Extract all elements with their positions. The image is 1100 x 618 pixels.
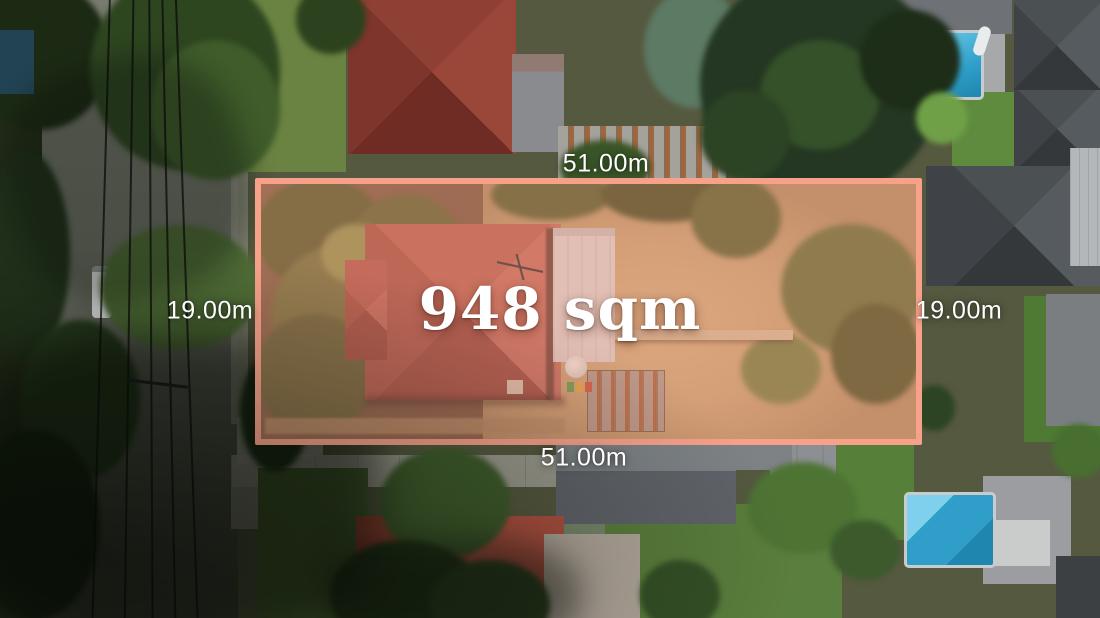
neighbor-annex-top xyxy=(512,54,564,152)
tree-canopy xyxy=(830,520,900,580)
dimension-label-left: 19.00m xyxy=(167,297,253,326)
tin-roof-right-edge xyxy=(1070,148,1100,266)
roof-bottom-right-corner xyxy=(1056,556,1100,618)
tree-canopy xyxy=(916,92,968,144)
tree-shadow xyxy=(320,540,580,618)
neighbor-roof-top-right-a xyxy=(1014,0,1100,92)
tree-canopy xyxy=(1052,424,1100,478)
area-label: 948 sqm xyxy=(419,275,702,343)
dimension-label-bottom: 51.00m xyxy=(541,444,627,473)
dimension-label-right: 19.00m xyxy=(916,297,1002,326)
pool-bottom-right xyxy=(904,492,996,568)
tree-canopy xyxy=(700,90,790,180)
neighbor-pool-glimpse-left xyxy=(0,30,34,94)
aerial-photo: 51.00m 51.00m 19.00m 19.00m 948 sqm xyxy=(0,0,1100,618)
dimension-label-top: 51.00m xyxy=(563,150,649,179)
neighbor-roof-top xyxy=(348,0,516,154)
neighbor-roof-lower-right xyxy=(1046,294,1100,426)
white-pergola xyxy=(992,520,1050,566)
